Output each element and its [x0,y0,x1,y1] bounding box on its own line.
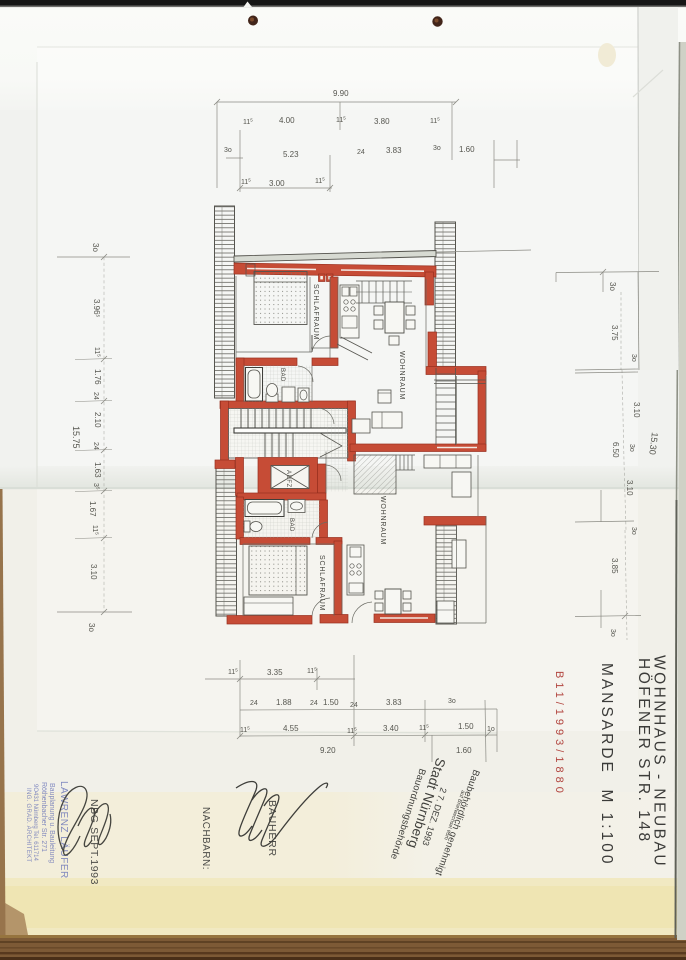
svg-text:WOHNRAUM: WOHNRAUM [379,496,386,545]
svg-text:6.50: 6.50 [611,442,620,458]
svg-text:4.00: 4.00 [279,116,295,125]
svg-text:BAD: BAD [288,518,294,532]
svg-text:Röthenbacher Str. 271: Röthenbacher Str. 271 [40,782,47,852]
svg-text:3.35: 3.35 [267,668,283,677]
svg-text:24: 24 [250,700,258,707]
svg-text:3o: 3o [224,147,232,154]
svg-text:ING. GRAD. ARCHITEKT: ING. GRAD. ARCHITEKT [25,788,31,862]
svg-text:3.10: 3.10 [89,564,98,580]
svg-text:3.83: 3.83 [386,698,402,707]
svg-text:3o: 3o [87,623,96,632]
svg-text:9O431 Nürnberg Tel. 611714: 9O431 Nürnberg Tel. 611714 [32,784,38,861]
svg-text:WOHNHAUS - NEUBAU: WOHNHAUS - NEUBAU [651,655,668,868]
svg-text:3o: 3o [448,698,456,705]
svg-text:WOHNRAUM: WOHNRAUM [398,351,405,400]
svg-text:1.60: 1.60 [456,746,472,755]
svg-text:1.60: 1.60 [459,145,475,154]
svg-text:24: 24 [92,392,99,400]
svg-text:1.63: 1.63 [93,462,102,478]
svg-text:3o: 3o [91,243,100,252]
svg-text:1.88: 1.88 [276,698,292,707]
svg-text:B11/1993/1880: B11/1993/1880 [553,671,565,797]
svg-text:2.10: 2.10 [93,412,102,428]
svg-text:3o: 3o [630,527,637,535]
svg-text:3o: 3o [608,282,617,291]
svg-text:3.80: 3.80 [374,117,390,126]
svg-text:SCHLAFRAUM: SCHLAFRAUM [318,555,325,611]
svg-text:3o: 3o [630,354,637,362]
svg-text:3o: 3o [628,444,635,452]
svg-text:3.40: 3.40 [383,724,399,733]
svg-text:1.76: 1.76 [93,369,102,385]
svg-text:9.20: 9.20 [320,746,336,755]
svg-text:BAUHERR: BAUHERR [266,800,278,857]
svg-text:3.83: 3.83 [386,146,402,155]
svg-text:24: 24 [310,700,318,707]
svg-text:BAD: BAD [279,368,285,382]
svg-text:9.90: 9.90 [333,89,349,98]
svg-text:24: 24 [357,149,365,156]
svg-text:MANSARDE M 1:100: MANSARDE M 1:100 [598,663,615,866]
svg-text:SCHLAFRAUM: SCHLAFRAUM [312,284,319,340]
svg-text:15.75: 15.75 [71,426,81,449]
svg-text:Bauplanung u. Bauleitung: Bauplanung u. Bauleitung [48,783,55,863]
svg-text:1.67: 1.67 [88,501,97,517]
svg-text:3.10: 3.10 [632,402,641,418]
svg-text:5.23: 5.23 [283,150,299,159]
svg-text:3o: 3o [433,145,441,152]
svg-text:NACHBARN:: NACHBARN: [200,807,211,870]
svg-text:24: 24 [350,702,358,709]
svg-text:3.10: 3.10 [625,480,634,496]
svg-text:LAWRENZ LÄUFER: LAWRENZ LÄUFER [58,781,70,879]
svg-text:3.00: 3.00 [269,179,285,188]
svg-text:24: 24 [92,442,99,450]
svg-text:3.85: 3.85 [610,558,619,574]
svg-text:4.55: 4.55 [283,724,299,733]
svg-text:3.75: 3.75 [610,325,619,341]
svg-text:3o: 3o [609,629,616,637]
svg-text:1o: 1o [487,726,495,733]
svg-text:HÖFENER STR. 148: HÖFENER STR. 148 [635,658,653,844]
svg-text:1.50: 1.50 [458,722,474,731]
svg-text:AUFZ.: AUFZ. [285,470,291,490]
svg-text:1.50: 1.50 [323,698,339,707]
